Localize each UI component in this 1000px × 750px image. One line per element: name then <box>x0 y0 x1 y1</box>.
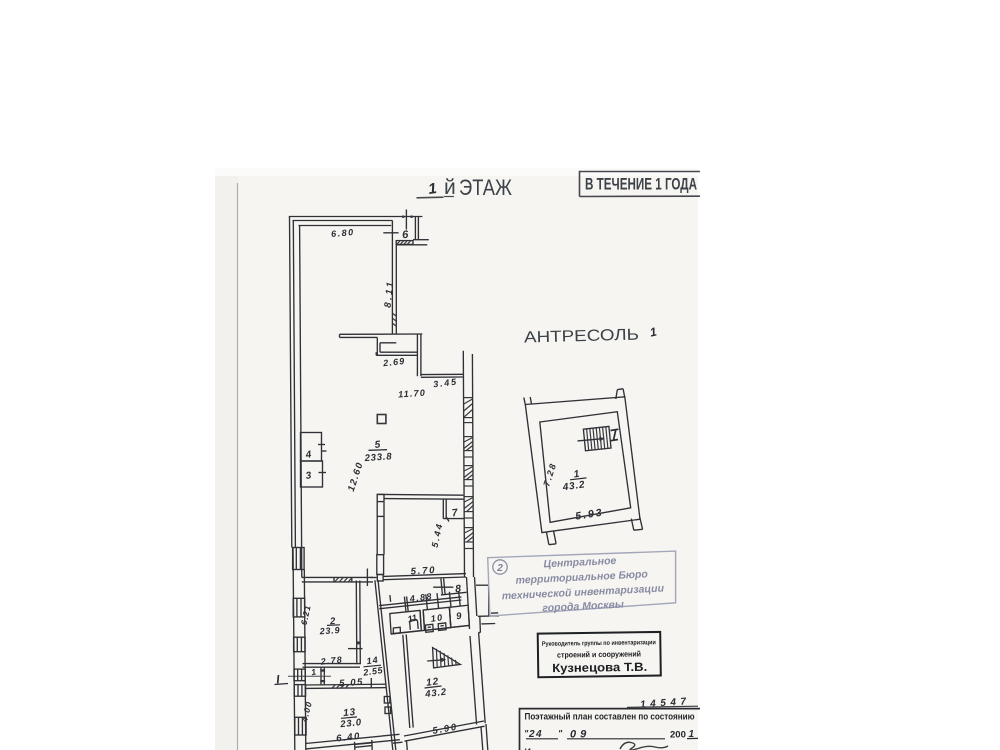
svg-text:6.80: 6.80 <box>331 227 355 239</box>
svg-text:23.0: 23.0 <box>339 717 363 730</box>
svg-text:5.70: 5.70 <box>410 565 436 578</box>
svg-text:ЭТАЖ: ЭТАЖ <box>459 175 513 200</box>
svg-text:14: 14 <box>366 655 379 667</box>
svg-text:й: й <box>444 176 456 199</box>
svg-text:В ТЕЧЕНИЕ 1 ГОДА: В ТЕЧЕНИЕ 1 ГОДА <box>585 176 697 194</box>
svg-text:200: 200 <box>670 729 686 740</box>
svg-text:11.70: 11.70 <box>398 388 426 400</box>
svg-text:Поэтажный план составлен по со: Поэтажный план составлен по состоянию <box>525 711 695 722</box>
svg-text:2: 2 <box>496 563 503 574</box>
svg-text:строений и сооружений: строений и сооружений <box>557 649 641 659</box>
svg-text:10: 10 <box>430 612 444 624</box>
svg-text:Кузнецова Т.В.: Кузнецова Т.В. <box>552 660 647 675</box>
svg-text:": " <box>558 729 563 739</box>
svg-text:233.8: 233.8 <box>363 451 392 464</box>
svg-text:АНТРЕСОЛЬ: АНТРЕСОЛЬ <box>524 327 639 347</box>
svg-text:23.9: 23.9 <box>318 625 340 636</box>
